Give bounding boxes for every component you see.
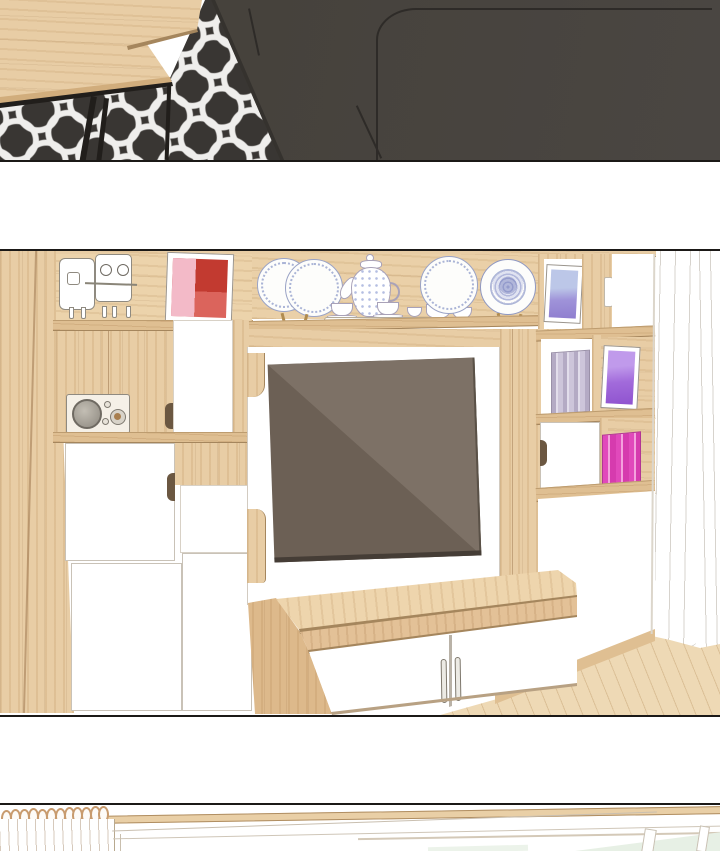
wood-block [173, 443, 252, 485]
sofa-cushion-seam [376, 8, 712, 162]
plate-rim-pattern [424, 260, 474, 310]
mini-cabinet-knob [67, 272, 80, 285]
purple-art-frame [600, 345, 640, 410]
red-art [171, 258, 228, 318]
robot-eye [100, 264, 112, 276]
window-glass [428, 845, 528, 851]
finger-cutout-handle [167, 473, 175, 501]
open-compartment [180, 485, 248, 553]
curtain-fold [696, 251, 720, 659]
finger-cutout-handle [165, 403, 173, 429]
blue-art [549, 269, 578, 318]
radio-knob-small [104, 401, 111, 408]
cabinet-door-white [71, 563, 182, 711]
curtain-rod [94, 806, 720, 824]
figurine-leg [112, 306, 117, 318]
robot-eye [117, 264, 129, 276]
niche-wood-bracket [247, 509, 266, 583]
panel-living-room [0, 0, 720, 162]
figurine-leg [126, 306, 131, 318]
open-compartment [173, 320, 233, 433]
figurine-leg [81, 307, 86, 319]
niche-soffit [249, 329, 502, 347]
figurine-leg [102, 306, 107, 318]
radio-tuning-knob [110, 409, 126, 425]
knob-center [114, 413, 121, 420]
robot-figurine-head [95, 254, 132, 302]
cabinet-door-white [65, 443, 175, 561]
comic-page [0, 0, 720, 851]
retro-radio [66, 394, 130, 434]
tv-screen-glare [268, 357, 482, 562]
radio-speaker [72, 399, 102, 429]
china-plate [420, 256, 478, 314]
curtain-folds [0, 819, 115, 851]
console-handle [455, 657, 462, 701]
blue-art-frame [544, 264, 584, 324]
purple-art [606, 350, 636, 404]
radio-knob-small [102, 418, 109, 425]
niche-wood-bracket [247, 353, 265, 397]
lavender-book-stack [551, 350, 590, 415]
frame-vertical-line [120, 834, 121, 851]
panel-curtain-rod [0, 803, 720, 851]
curtain [646, 251, 720, 669]
console-handle [441, 659, 448, 703]
red-art-frame [165, 252, 234, 324]
open-back-white [612, 254, 655, 331]
flat-screen-tv [268, 357, 482, 562]
finger-cutout-handle [540, 440, 547, 466]
blue-plate-pattern [490, 269, 526, 305]
cabinet-side-white [182, 553, 252, 711]
blue-ornate-plate [480, 259, 536, 315]
panel-tv-wall-unit [0, 249, 720, 717]
figurine-leg [69, 307, 74, 319]
shelf-board [53, 432, 253, 443]
